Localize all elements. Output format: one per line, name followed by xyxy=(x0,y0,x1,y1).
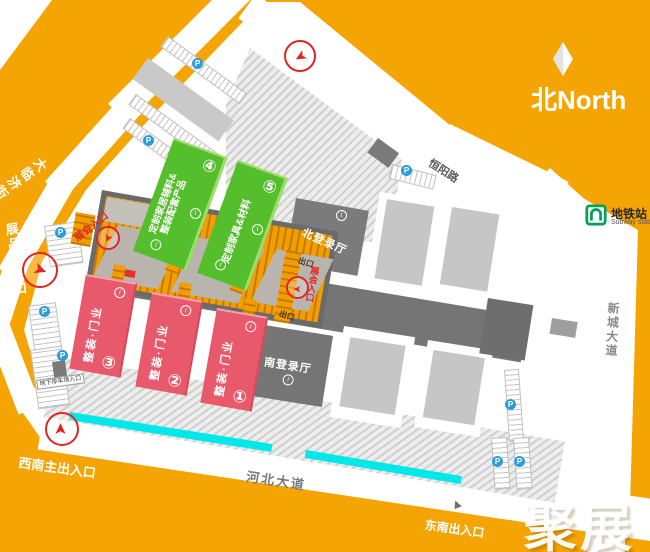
building-east-4-roof xyxy=(423,350,485,425)
parking-icon: P xyxy=(55,227,66,238)
street-xincheng: 新城大道 xyxy=(603,302,623,359)
hall-5-label: 定制家具&材料 xyxy=(217,197,254,265)
building-east-4 xyxy=(414,340,493,437)
entrance-southeast-label: 东南出入口 xyxy=(424,516,486,541)
expo-entrance-west-marker: ➤ xyxy=(96,226,120,250)
expo-entrance-east-marker: ➤ xyxy=(286,276,309,299)
hall-5-number: ⑤ xyxy=(260,176,279,197)
subway-subtitle: Subway station xyxy=(611,219,650,226)
building-east-1-roof xyxy=(374,199,434,286)
hall-1-label: 整装·门业 xyxy=(211,338,237,398)
hall-3-label: 整装·门业 xyxy=(80,304,106,364)
building-east-3-roof xyxy=(339,337,405,415)
hall-2-number: ② xyxy=(166,371,183,390)
compass: 北North xyxy=(531,42,650,118)
parking-icon: P xyxy=(492,456,503,467)
entrance-northwest-marker: ➤ xyxy=(284,40,316,72)
parking-icon: P xyxy=(192,58,203,69)
compass-diamond-icon xyxy=(553,42,573,76)
hall-3-number: ③ xyxy=(100,353,117,372)
subway-icon xyxy=(585,204,607,226)
watermark: 聚展 xyxy=(524,486,636,552)
info-icon: i xyxy=(113,286,126,299)
arrow-icon: ➤ xyxy=(97,230,119,247)
entrance-southwest-marker: ➤ xyxy=(45,412,79,446)
building-east-3 xyxy=(330,326,416,428)
arrow-icon: ➤ xyxy=(47,422,77,435)
info-icon: i xyxy=(190,208,201,219)
info-icon: i xyxy=(336,210,347,221)
parking-icon: P xyxy=(505,399,516,410)
subway-station: 地铁站 Subway station xyxy=(585,203,650,233)
parking-icon: P xyxy=(514,456,525,467)
arrow-icon: ➤ xyxy=(288,41,313,72)
parking-icon: P xyxy=(57,350,68,361)
venue-map: 南登录厅 i ④ 定制家居辅料& 整装配套产品 i ⑤ 定制家具&材料 i i … xyxy=(0,0,650,552)
info-icon: i xyxy=(149,238,163,252)
info-icon: i xyxy=(179,304,192,317)
compass-label: 北North xyxy=(531,80,626,117)
info-icon: i xyxy=(282,374,295,387)
arrow-icon: ➤ xyxy=(28,253,52,288)
building-east-2-roof xyxy=(440,207,500,292)
parking-icon: P xyxy=(39,306,50,317)
building-east-dark xyxy=(479,298,533,361)
hall-4-number: ④ xyxy=(200,156,219,177)
hall-2-label: 整装·门业 xyxy=(146,322,172,382)
arrow-icon: ➤ xyxy=(293,279,301,298)
info-icon: i xyxy=(252,224,263,235)
parking-icon: P xyxy=(401,165,412,176)
parking-icon: P xyxy=(143,135,154,146)
corner-wedge xyxy=(0,0,60,75)
entrance-exhibits-marker: ➤ xyxy=(22,252,58,288)
hall-1-number: ① xyxy=(231,387,248,406)
info-icon: i xyxy=(244,320,257,333)
